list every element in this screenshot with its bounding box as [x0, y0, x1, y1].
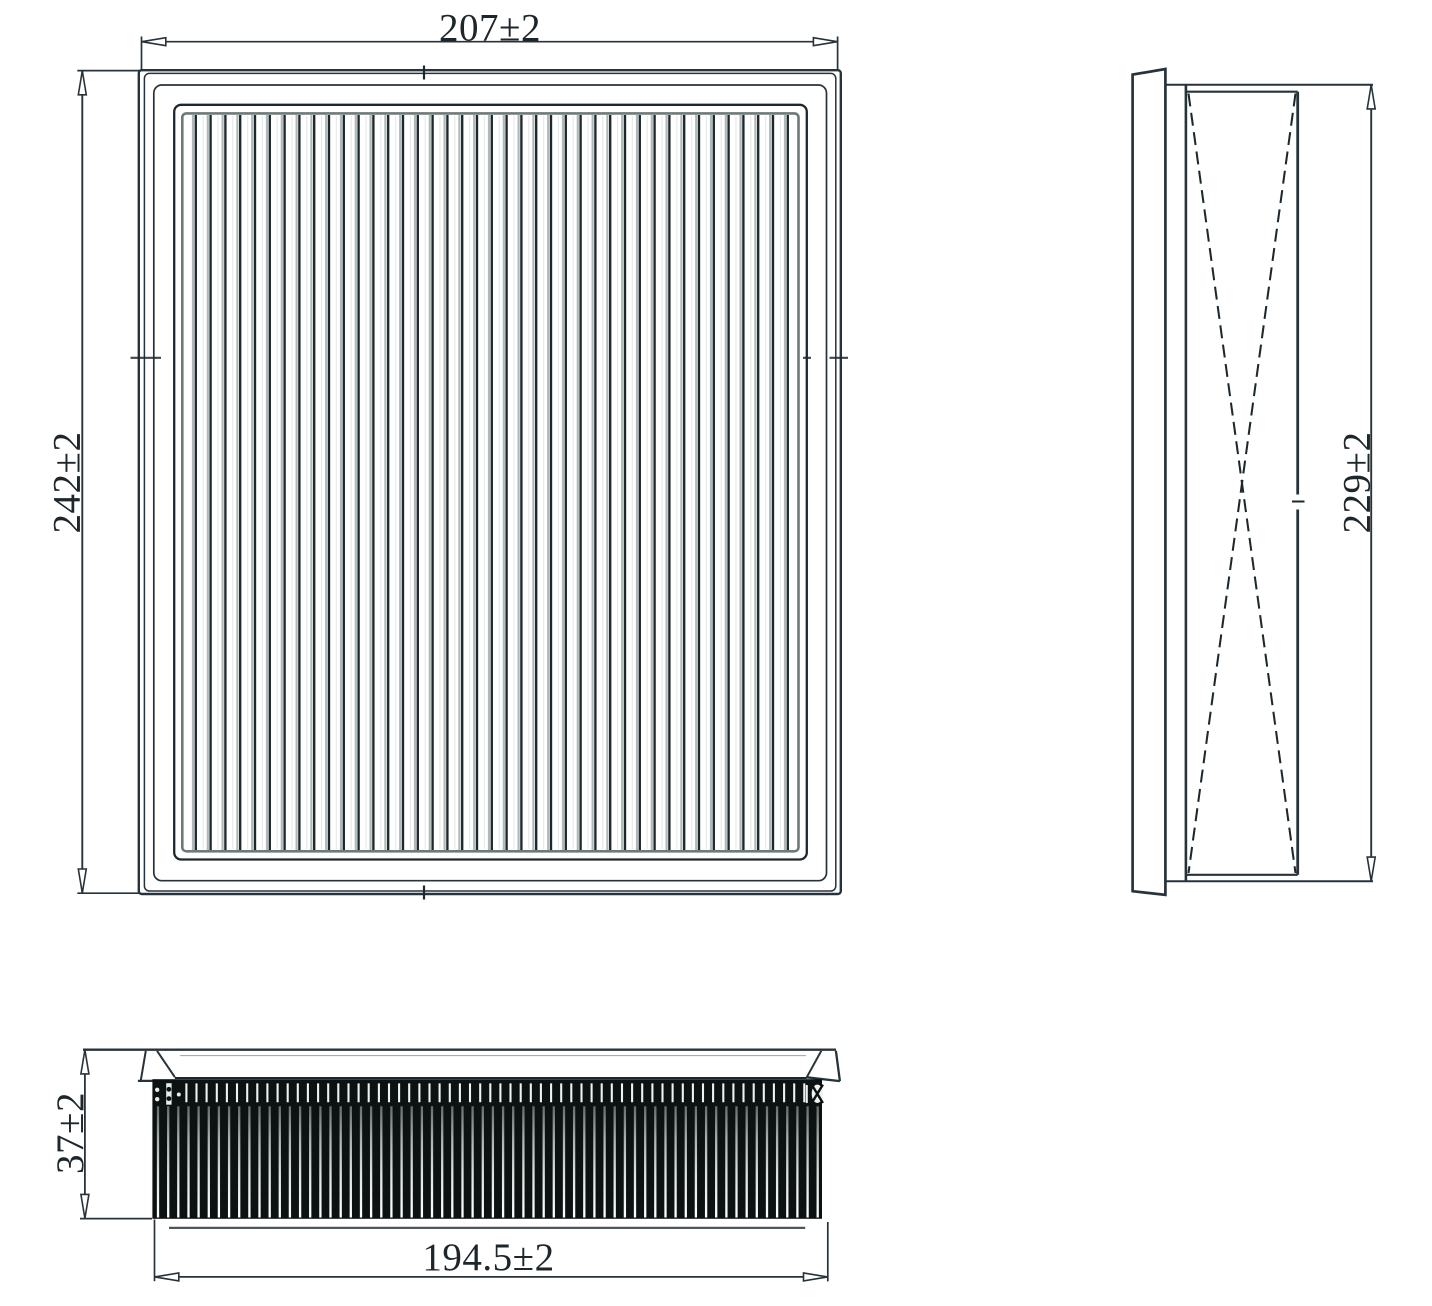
svg-text:242±2: 242±2	[46, 432, 89, 534]
svg-text:194.5±2: 194.5±2	[422, 1236, 554, 1279]
svg-text:207±2: 207±2	[439, 7, 541, 50]
svg-text:229±2: 229±2	[1336, 432, 1379, 534]
svg-text:37±2: 37±2	[49, 1092, 92, 1174]
